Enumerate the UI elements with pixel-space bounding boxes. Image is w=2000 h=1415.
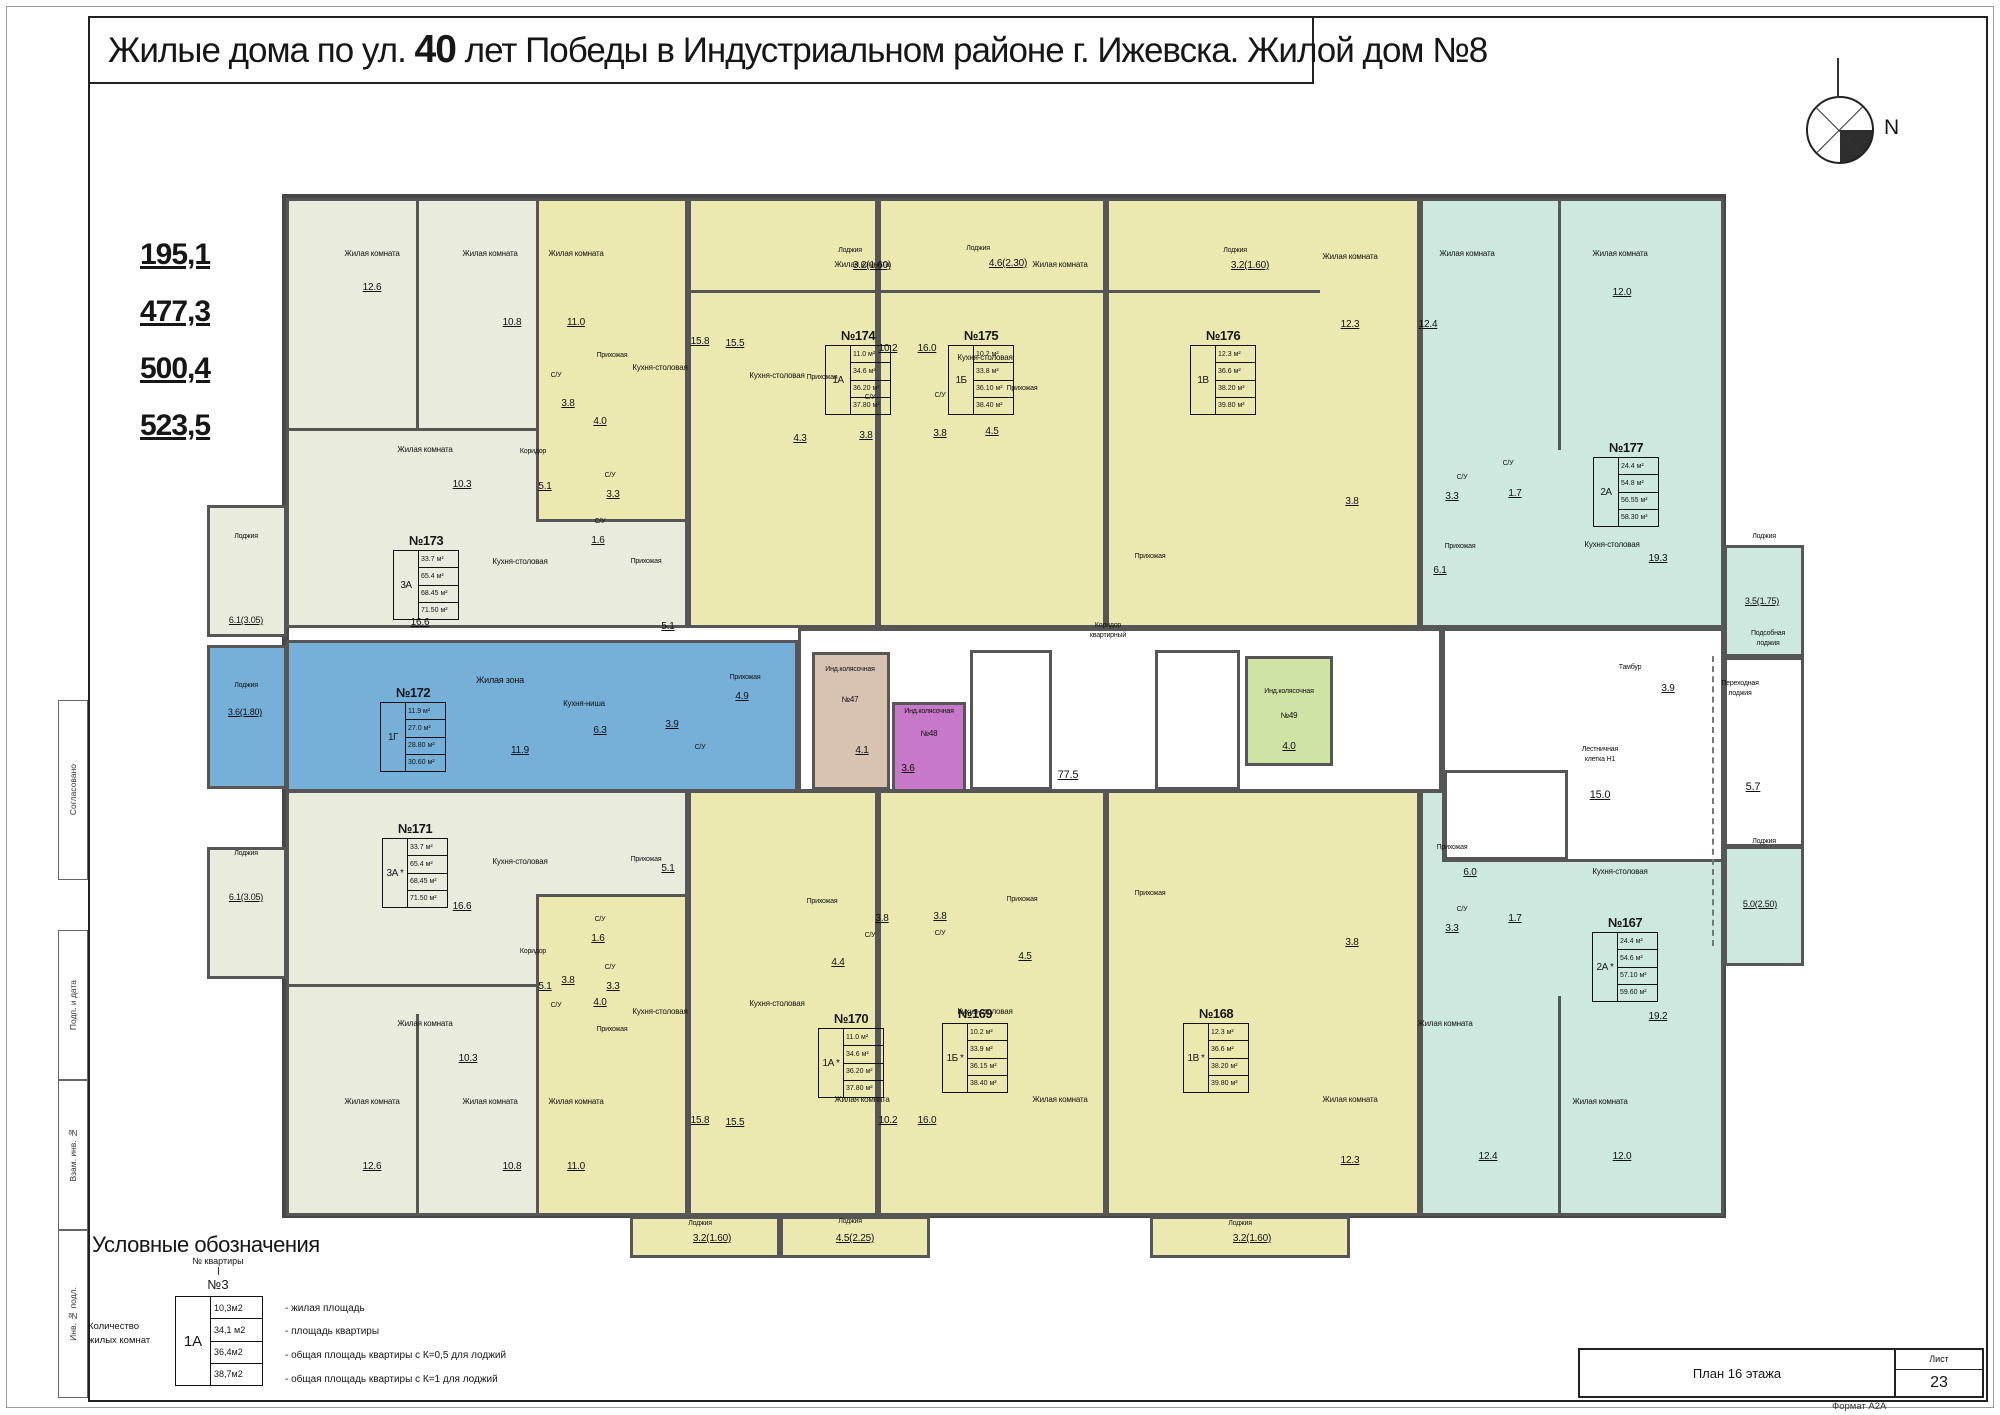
plan-name: План 16 этажа [1580, 1350, 1894, 1396]
area-value: 10.2 м² [974, 346, 1013, 363]
apartment-number: №170 [806, 1011, 896, 1026]
apartment-area-rows: 12.3 м²36.6 м²38.20 м²39.80 м² [1209, 1024, 1248, 1092]
area-value: 58.30 м² [1619, 510, 1658, 526]
area-value: 11.0 м² [844, 1029, 883, 1046]
apartment-area-table: 1В *12.3 м²36.6 м²38.20 м²39.80 м² [1183, 1023, 1249, 1093]
area-value: 71.50 м² [408, 891, 447, 907]
room-label: Прихожая [730, 674, 761, 681]
dimension-label: 11.0 [567, 318, 585, 328]
room-label: Кухня-столовая [492, 558, 547, 566]
area-value: 11.9 м² [406, 703, 445, 720]
dimension-label: 15.8 [691, 337, 710, 347]
dimension-label: 12.4 [1419, 320, 1438, 330]
room-label: Инд.колясочная [1264, 688, 1313, 695]
area-value: 33.7 м² [419, 551, 458, 568]
apartment-table: №1721Г11.9 м²27.0 м²28.80 м²30.60 м² [380, 702, 446, 772]
apartment-number: №174 [813, 328, 903, 343]
apartment-number: №171 [370, 821, 460, 836]
apartment-type: 1Б * [943, 1024, 968, 1092]
room-label: Кухня-столовая [632, 1008, 687, 1016]
room-label: С/У [695, 744, 706, 751]
wall-line [1558, 996, 1561, 1216]
room-label: Жилая комната [462, 250, 517, 258]
room-label: С/У [1457, 474, 1468, 481]
area-value: 36.10 м² [974, 381, 1013, 398]
room-label: Жилая комната [397, 1020, 452, 1028]
area-value: 34.6 м² [851, 363, 890, 380]
room-label: Прихожая [1445, 543, 1476, 550]
room-label: Лоджия [1752, 533, 1776, 540]
apartment-type: 1А [826, 346, 851, 414]
legend-sample-table: 1А 10,3м2 34,1 м2 36,4м2 38,7м2 [175, 1296, 263, 1386]
apartment-type: 1В * [1184, 1024, 1209, 1092]
room-label: Жилая комната [1032, 261, 1087, 269]
room-label: Лоджия [234, 682, 258, 689]
dimension-label: 4.5 [1018, 952, 1031, 962]
dimension-label: 4.0 [1282, 742, 1295, 752]
dimension-label: 1.6 [591, 934, 604, 944]
apartment-table: №1701А *11.0 м²34.6 м²36.20 м²37.80 м² [818, 1028, 884, 1098]
dimension-label: 12.0 [1613, 288, 1632, 298]
dimension-label: 4.9 [735, 692, 748, 702]
room-label: С/У [551, 372, 562, 379]
room-label: С/У [605, 472, 616, 479]
area-value: 36.6 м² [1216, 363, 1255, 380]
apartment-number: №177 [1581, 440, 1671, 455]
dimension-label: 3.8 [1345, 938, 1358, 948]
room-label: Жилая комната [1032, 1096, 1087, 1104]
apartment-area-rows: 10.2 м²33.9 м²36.15 м²38.40 м² [968, 1024, 1007, 1092]
dimension-label: 3.3 [606, 982, 619, 992]
apartment-area-rows: 33.7 м²65.4 м²68.45 м²71.50 м² [408, 839, 447, 907]
dimension-label: 16.6 [453, 902, 472, 912]
area-value: 28.80 м² [406, 738, 445, 755]
title-block: План 16 этажа Лист 23 [1578, 1348, 1984, 1398]
dimension-label: 3.8 [561, 399, 574, 409]
dimension-label: 3.8 [859, 431, 872, 441]
room-label: Жилая комната [1322, 253, 1377, 261]
dimension-label: 6.1(3.05) [229, 616, 263, 625]
area-value: 37.80 м² [851, 398, 890, 414]
dimension-label: 5.1 [538, 482, 551, 492]
area-value: 24.4 м² [1618, 933, 1657, 950]
floor-plan: Лоджия3.2(1.60)Лоджия4.6(2.30)Лоджия3.2(… [0, 0, 2000, 1415]
room-label: клетка Н1 [1585, 756, 1615, 763]
apartment-area-table: 1Г11.9 м²27.0 м²28.80 м²30.60 м² [380, 702, 446, 772]
room-label: Жилая зона [476, 676, 524, 685]
apartment-table: №1672А *24.4 м²54.6 м²57.10 м²59.60 м² [1592, 932, 1658, 1002]
dimension-label: 3.6(1.80) [228, 708, 262, 717]
dimension-label: 19.2 [1649, 1012, 1668, 1022]
apartment-area-rows: 24.4 м²54.6 м²57.10 м²59.60 м² [1618, 933, 1657, 1001]
room-label: Инд.колясочная [825, 666, 874, 673]
room-label: Подсобная [1751, 630, 1785, 637]
apartment-168-zone [1106, 790, 1420, 1216]
room-label: Кухня-столовая [1584, 541, 1639, 549]
lodge-mid-left [207, 645, 287, 789]
room-label: №47 [842, 696, 859, 704]
dimension-label: 4.0 [593, 998, 606, 1008]
area-value: 33.8 м² [974, 363, 1013, 380]
area-value: 36.20 м² [844, 1064, 883, 1081]
dimension-label: 5.1 [661, 622, 674, 632]
apartment-number: №175 [936, 328, 1026, 343]
apartment-type: 3А [394, 551, 419, 619]
room-label: Прихожая [631, 856, 662, 863]
dimension-label: 5.1 [661, 864, 674, 874]
area-value: 12.3 м² [1216, 346, 1255, 363]
area-value: 36.15 м² [968, 1059, 1007, 1076]
room-label: С/У [935, 930, 946, 937]
area-value: 10.2 м² [968, 1024, 1007, 1041]
dimension-label: 5.1 [538, 982, 551, 992]
room-label: Лоджия [1752, 838, 1776, 845]
dimension-label: 12.6 [363, 1162, 382, 1172]
lodge-bottom-left [207, 847, 287, 979]
room-label: Жилая комната [1322, 1096, 1377, 1104]
dimension-label: 3.2(1.60) [1233, 1234, 1271, 1244]
room-label: №48 [921, 730, 938, 738]
area-value: 36.6 м² [1209, 1041, 1248, 1058]
dimension-label: 4.3 [793, 434, 806, 444]
apartment-area-table: 3А *33.7 м²65.4 м²68.45 м²71.50 м² [382, 838, 448, 908]
apartment-area-table: 1А11.0 м²34.6 м²36.20 м²37.80 м² [825, 345, 891, 415]
apartment-table: №1772А24.4 м²54.8 м²56.55 м²58.30 м² [1593, 457, 1659, 527]
dimension-label: 10.3 [459, 1054, 478, 1064]
apartment-type: 1Б [949, 346, 974, 414]
apartment-area-table: 1Б10.2 м²33.8 м²36.10 м²38.40 м² [948, 345, 1014, 415]
room-label: Жилая комната [1572, 1098, 1627, 1106]
legend-desc: - общая площадь квартиры с К=0,5 для лод… [285, 1350, 506, 1361]
area-value: 36.20 м² [851, 381, 890, 398]
apartment-number: №176 [1178, 328, 1268, 343]
legend-room-count-line1: Количество [88, 1321, 139, 1332]
room-label: Лоджия [838, 1218, 862, 1225]
room-label: Кухня-столовая [749, 1000, 804, 1008]
room-label: Тамбур [1619, 664, 1642, 671]
dimension-label: 6.1(3.05) [229, 893, 263, 902]
room-label: №49 [1281, 712, 1298, 720]
apartment-table: №1681В *12.3 м²36.6 м²38.20 м²39.80 м² [1183, 1023, 1249, 1093]
room-label: Жилая комната [1417, 1020, 1472, 1028]
wall-line [1712, 656, 1714, 946]
wall-line [1558, 198, 1561, 450]
apartment-area-table: 2А24.4 м²54.8 м²56.55 м²58.30 м² [1593, 457, 1659, 527]
sheet-number-cell: Лист 23 [1894, 1350, 1982, 1396]
room-label: Жилая комната [1439, 250, 1494, 258]
room-label: Жилая комната [834, 261, 889, 269]
area-value: 54.6 м² [1618, 950, 1657, 967]
dimension-label: 3.9 [665, 720, 678, 730]
dimension-label: 3.8 [561, 976, 574, 986]
elevator-shaft-2 [1155, 650, 1240, 790]
dimension-label: 15.5 [726, 1118, 745, 1128]
dimension-label: 4.6(2.30) [989, 259, 1027, 269]
legend-apartment-number-label: № квартиры [192, 1256, 243, 1266]
apartment-table: №1713А *33.7 м²65.4 м²68.45 м²71.50 м² [382, 838, 448, 908]
dimension-label: 10.2 [879, 1116, 898, 1126]
room-label: Кухня-столовая [492, 858, 547, 866]
area-value: 57.10 м² [1618, 968, 1657, 985]
area-value: 38.20 м² [1216, 381, 1255, 398]
room-label: квартирный [1090, 632, 1126, 639]
sheet-number: 23 [1896, 1370, 1982, 1396]
apartment-number: №169 [930, 1006, 1020, 1021]
room-label: С/У [595, 916, 606, 923]
apartment-type: 2А * [1593, 933, 1618, 1001]
room-label: Кухня-ниша [563, 700, 605, 708]
dimension-label: 5.0(2.50) [1743, 900, 1777, 909]
dimension-label: 10.8 [503, 1162, 522, 1172]
legend-sample-value: 34,1 м2 [211, 1319, 262, 1341]
room-label: Прихожая [1007, 896, 1038, 903]
dimension-label: 3.3 [606, 490, 619, 500]
dimension-label: 4.5(2.25) [836, 1234, 874, 1244]
dimension-label: 3.8 [933, 429, 946, 439]
area-value: 38.40 м² [968, 1076, 1007, 1092]
apartment-area-table: 1А *11.0 м²34.6 м²36.20 м²37.80 м² [818, 1028, 884, 1098]
apartment-table: №1751Б10.2 м²33.8 м²36.10 м²38.40 м² [948, 345, 1014, 415]
area-value: 39.80 м² [1209, 1076, 1248, 1092]
apartment-area-rows: 11.9 м²27.0 м²28.80 м²30.60 м² [406, 703, 445, 771]
apartment-table: №1733А33.7 м²65.4 м²68.45 м²71.50 м² [393, 550, 459, 620]
room-label: Прихожая [597, 352, 628, 359]
stroller-room-48 [892, 702, 966, 792]
apartment-number: №168 [1171, 1006, 1261, 1021]
legend-sample-type: 1А [176, 1297, 211, 1385]
apartment-169-zone [878, 790, 1106, 1216]
room-label: Прихожая [1135, 890, 1166, 897]
dimension-label: 10.3 [453, 480, 472, 490]
room-label: Жилая комната [344, 250, 399, 258]
legend-sample-value: 36,4м2 [211, 1342, 262, 1364]
area-value: 39.80 м² [1216, 398, 1255, 414]
wall-line [416, 1014, 419, 1216]
wall-line [286, 984, 538, 987]
room-label: Прихожая [1135, 553, 1166, 560]
apartment-area-rows: 11.0 м²34.6 м²36.20 м²37.80 м² [851, 346, 890, 414]
dimension-label: 12.3 [1341, 320, 1360, 330]
area-value: 33.7 м² [408, 839, 447, 856]
legend-pointer-line [218, 1267, 219, 1275]
dimension-label: 3.2(1.60) [1231, 261, 1269, 271]
dimension-label: 6.1 [1433, 566, 1446, 576]
room-label: Прихожая [597, 1026, 628, 1033]
area-value: 30.60 м² [406, 755, 445, 771]
area-value: 68.45 м² [408, 874, 447, 891]
legend-room-count-line2: жилых комнат [88, 1335, 150, 1346]
area-value: 71.50 м² [419, 603, 458, 619]
legend-desc: - жилая площадь [285, 1303, 365, 1314]
apartment-number: №167 [1580, 915, 1670, 930]
legend-apartment-number-value: №3 [207, 1277, 228, 1292]
dimension-label: 4.5 [985, 427, 998, 437]
room-label: Переходная [1721, 680, 1758, 687]
room-label: Коридор [520, 948, 546, 955]
dimension-label: 3.2(1.60) [693, 1234, 731, 1244]
apartment-area-table: 1Б *10.2 м²33.9 м²36.15 м²38.40 м² [942, 1023, 1008, 1093]
room-label: Лоджия [688, 1220, 712, 1227]
room-label: Инд.колясочная [904, 708, 953, 715]
room-label: Жилая комната [1592, 250, 1647, 258]
room-label: С/У [595, 518, 606, 525]
apartment-type: 2А [1594, 458, 1619, 526]
room-label: Лоджия [1223, 247, 1247, 254]
dimension-label: 15.0 [1590, 790, 1611, 801]
apartment-type: 3А * [383, 839, 408, 907]
room-label: лоджия [1756, 640, 1779, 647]
area-value: 24.4 м² [1619, 458, 1658, 475]
dimension-label: 12.4 [1479, 1152, 1498, 1162]
room-label: С/У [605, 964, 616, 971]
dimension-label: 11.9 [511, 746, 529, 756]
legend-title: Условные обозначения [92, 1232, 320, 1258]
apartment-area-rows: 10.2 м²33.8 м²36.10 м²38.40 м² [974, 346, 1013, 414]
dimension-label: 19.3 [1649, 554, 1668, 564]
dimension-label: 1.6 [591, 536, 604, 546]
room-label: Лестничная [1582, 746, 1618, 753]
room-label: Прихожая [1437, 844, 1468, 851]
room-label: С/У [551, 1002, 562, 1009]
apartment-type: 1Г [381, 703, 406, 771]
room-label: С/У [865, 932, 876, 939]
apartment-type: 1В [1191, 346, 1216, 414]
apartment-area-rows: 24.4 м²54.8 м²56.55 м²58.30 м² [1619, 458, 1658, 526]
room-label: Жилая комната [344, 1098, 399, 1106]
dimension-label: 12.0 [1613, 1152, 1632, 1162]
area-value: 65.4 м² [408, 856, 447, 873]
area-value: 38.20 м² [1209, 1059, 1248, 1076]
dimension-label: 3.3 [1445, 924, 1458, 934]
dimension-label: 6.3 [593, 726, 606, 736]
room-label: Лоджия [838, 247, 862, 254]
room-label: Кухня-столовая [1592, 868, 1647, 876]
room-label: Прихожая [631, 558, 662, 565]
dimension-label: 15.8 [691, 1116, 710, 1126]
format-label: Формат А2А [1832, 1401, 1886, 1412]
legend-sample-rows: 10,3м2 34,1 м2 36,4м2 38,7м2 [211, 1297, 262, 1385]
legend-sample-value: 10,3м2 [211, 1297, 262, 1319]
sheet-word: Лист [1896, 1350, 1982, 1370]
dimension-label: 16.0 [918, 344, 937, 354]
room-label: Коридор [520, 448, 546, 455]
dimension-label: 3.8 [875, 914, 888, 924]
apartment-table: №1741А11.0 м²34.6 м²36.20 м²37.80 м² [825, 345, 891, 415]
apartment-area-table: 2А *24.4 м²54.6 м²57.10 м²59.60 м² [1592, 932, 1658, 1002]
room-label: Прихожая [807, 898, 838, 905]
area-value: 65.4 м² [419, 568, 458, 585]
room-label: лоджия [1728, 690, 1751, 697]
room-label: Кухня-столовая [749, 372, 804, 380]
room-label: Лоджия [966, 245, 990, 252]
apartment-type: 1А * [819, 1029, 844, 1097]
area-value: 11.0 м² [851, 346, 890, 363]
room-label: Лоджия [234, 533, 258, 540]
area-value: 27.0 м² [406, 720, 445, 737]
dimension-label: 1.7 [1508, 489, 1521, 499]
apartment-number: №172 [368, 685, 458, 700]
apartment-area-rows: 33.7 м²65.4 м²68.45 м²71.50 м² [419, 551, 458, 619]
area-value: 59.60 м² [1618, 985, 1657, 1001]
wall-line [286, 428, 538, 431]
legend-room-count-label: Количество жилых комнат [88, 1320, 158, 1349]
dimension-label: 3.6 [901, 764, 914, 774]
apartment-table: №1761В12.3 м²36.6 м²38.20 м²39.80 м² [1190, 345, 1256, 415]
apartment-172-zone [286, 640, 798, 792]
apartment-table: №1691Б *10.2 м²33.9 м²36.15 м²38.40 м² [942, 1023, 1008, 1093]
dimension-label: 1.7 [1508, 914, 1521, 924]
room-label: С/У [935, 392, 946, 399]
apartment-170-strip [536, 894, 688, 1216]
area-value: 38.40 м² [974, 398, 1013, 414]
room-label: Жилая комната [462, 1098, 517, 1106]
area-value: 37.80 м² [844, 1081, 883, 1097]
dimension-label: 3.9 [1661, 684, 1674, 694]
dimension-label: 4.4 [831, 958, 844, 968]
dimension-label: 4.1 [855, 746, 868, 756]
area-value: 56.55 м² [1619, 493, 1658, 510]
dimension-label: 4.0 [593, 417, 606, 427]
wall-line [688, 290, 1320, 293]
dimension-label: 3.8 [933, 912, 946, 922]
area-value: 33.9 м² [968, 1041, 1007, 1058]
area-value: 34.6 м² [844, 1046, 883, 1063]
dimension-label: 3.8 [1345, 497, 1358, 507]
dimension-label: 11.0 [567, 1162, 585, 1172]
area-value: 12.3 м² [1209, 1024, 1248, 1041]
room-label: С/У [1503, 460, 1514, 467]
dimension-label: 10.8 [503, 318, 522, 328]
dimension-label: 5.7 [1746, 782, 1761, 793]
apartment-area-rows: 11.0 м²34.6 м²36.20 м²37.80 м² [844, 1029, 883, 1097]
apartment-area-table: 3А33.7 м²65.4 м²68.45 м²71.50 м² [393, 550, 459, 620]
area-value: 68.45 м² [419, 586, 458, 603]
room-label: Кухня-столовая [632, 364, 687, 372]
dimension-label: 15.5 [726, 339, 745, 349]
elevator-shaft-1 [970, 650, 1052, 790]
apartment-area-table: 1В12.3 м²36.6 м²38.20 м²39.80 м² [1190, 345, 1256, 415]
room-label: С/У [1457, 906, 1468, 913]
room-label: Коридор [1095, 622, 1121, 629]
dimension-label: 3.3 [1445, 492, 1458, 502]
area-value: 54.8 м² [1619, 475, 1658, 492]
wall-line [416, 198, 419, 430]
apartment-177-zone [1420, 198, 1724, 628]
room-label: Жилая комната [397, 446, 452, 454]
apartment-area-rows: 12.3 м²36.6 м²38.20 м²39.80 м² [1216, 346, 1255, 414]
dimension-label: 16.0 [918, 1116, 937, 1126]
dimension-label: 77.5 [1058, 770, 1079, 781]
legend-desc: - площадь квартиры [285, 1326, 379, 1337]
dimension-label: 6.0 [1463, 868, 1476, 878]
room-label: Жилая комната [548, 250, 603, 258]
dimension-label: 3.5(1.75) [1745, 597, 1779, 606]
dimension-label: 12.6 [363, 283, 382, 293]
legend-sample-value: 38,7м2 [211, 1364, 262, 1385]
room-label: Лоджия [1228, 1220, 1252, 1227]
dimension-label: 12.3 [1341, 1156, 1360, 1166]
apartment-number: №173 [381, 533, 471, 548]
room-label: Жилая комната [548, 1098, 603, 1106]
room-label: Лоджия [234, 850, 258, 857]
legend-desc: - общая площадь квартиры с К=1 для лоджи… [285, 1374, 498, 1385]
